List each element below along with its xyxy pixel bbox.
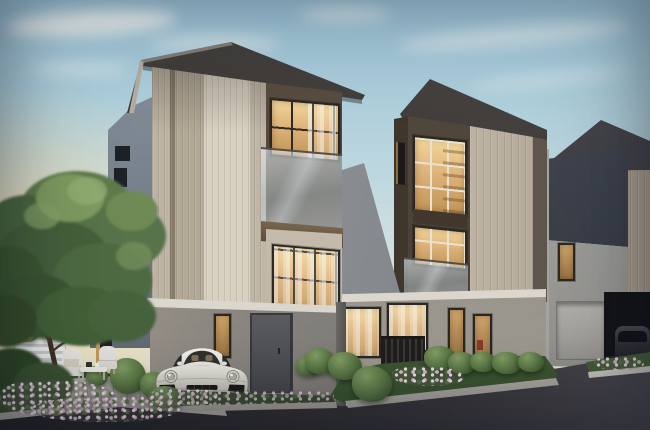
scene-architectural-render — [0, 0, 650, 430]
vignette — [0, 0, 650, 430]
